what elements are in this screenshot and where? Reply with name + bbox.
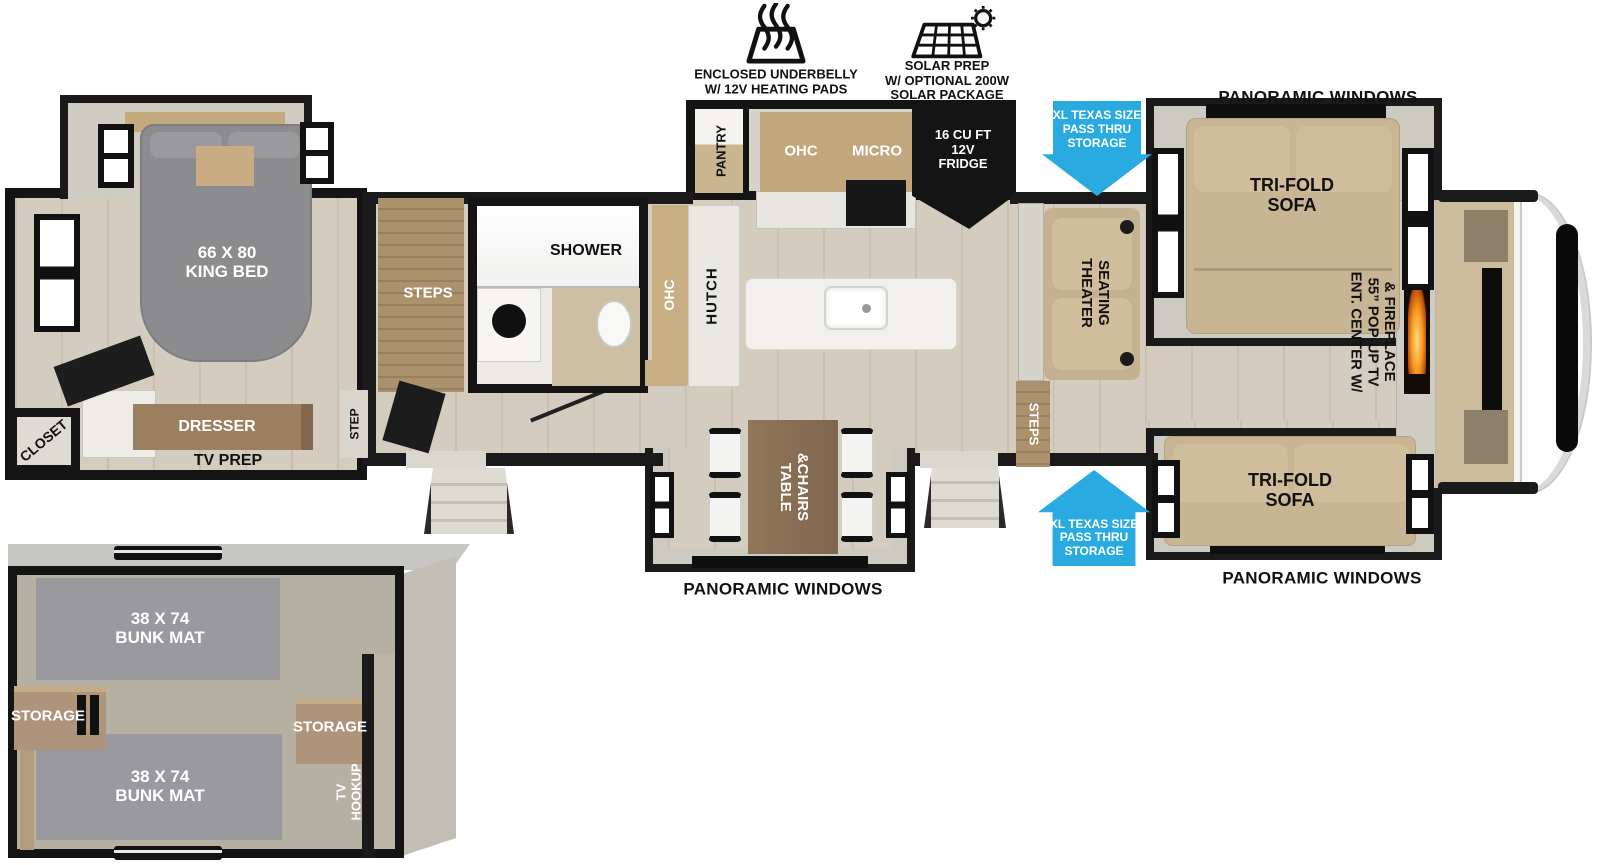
- storage-bay-wall: [1018, 203, 1044, 381]
- pantry-label: PANTRY: [715, 125, 730, 177]
- sofa-slide-bottom-window-right: [1406, 454, 1434, 534]
- entry-door-main: [406, 451, 486, 468]
- hutch-label: HUTCH: [705, 267, 722, 325]
- storage-slot: [90, 695, 99, 735]
- step-label: STEP: [348, 408, 361, 439]
- heating-pads-icon: [737, 3, 815, 65]
- fridge-label: 16 CU FT 12V FRIDGE: [935, 128, 991, 172]
- ohc-upper-label: OHC: [784, 144, 817, 161]
- solar-label: SOLAR PREP W/ OPTIONAL 200W SOLAR PACKAG…: [847, 59, 1047, 103]
- bath-sink-bowl: [492, 304, 526, 338]
- front-cap-window: [1556, 224, 1578, 452]
- entry-steps-living: [924, 466, 1006, 528]
- dresser-label: DRESSER: [178, 418, 255, 436]
- tri-fold-sofa-bottom-label: TRI-FOLD SOFA: [1248, 470, 1332, 510]
- dinette-chair: [708, 492, 742, 542]
- bed-tray: [196, 146, 254, 186]
- bunk-mat-bottom-label: 38 X 74 BUNK MAT: [115, 767, 204, 805]
- ent-cabinet-door-top: [1464, 210, 1508, 262]
- pass-thru-storage-arrow-top: XL TEXAS SIZE PASS THRU STORAGE: [1042, 101, 1152, 196]
- entry-door-living: [920, 451, 998, 468]
- dinette-chair: [708, 428, 742, 478]
- bunk-storage-right-label: STORAGE: [293, 720, 367, 737]
- tri-fold-sofa-top-label: TRI-FOLD SOFA: [1250, 175, 1334, 215]
- bunk-roof-hatch-top: [114, 546, 222, 560]
- sofa-slide-top-window-left: [1152, 148, 1184, 298]
- bunk-interior-wall: [362, 654, 374, 858]
- sofa-slide-top-window-right: [1402, 148, 1434, 290]
- living-steps-label: STEPS: [1026, 403, 1041, 446]
- table-chairs-label: TABLE &CHAIRS: [776, 453, 810, 521]
- micro-label: MICRO: [852, 144, 902, 161]
- bunk-tv-nook-floor: [374, 654, 395, 849]
- solar-panel-icon: [903, 6, 998, 62]
- pass-thru-storage-bottom-label: XL TEXAS SIZE PASS THRU STORAGE: [1038, 518, 1150, 559]
- interior-steps-label: STEPS: [403, 286, 452, 303]
- bedroom-slide-window-left: [98, 124, 134, 188]
- tv-prep-label: TV PREP: [194, 452, 262, 470]
- ohc-side-label: OHC: [662, 279, 678, 310]
- fireplace-flame: [1408, 290, 1426, 374]
- tv-hookup-label: TV HOOKUP: [334, 763, 363, 820]
- pass-thru-storage-top-label: XL TEXAS SIZE PASS THRU STORAGE: [1042, 109, 1152, 150]
- sink-drain: [862, 304, 871, 313]
- ent-center-label: ENT. CENTER W/ 55” POP-UP TV & FIREPLACE: [1347, 272, 1397, 393]
- dinette-panoramic-strip: [692, 556, 868, 568]
- front-cap-trim-bottom: [1438, 482, 1538, 494]
- bunk-right-wall-face: [402, 556, 456, 856]
- island-sink: [824, 286, 888, 330]
- dinette-window-right: [886, 472, 910, 538]
- sofa-seam: [1194, 268, 1392, 271]
- panoramic-windows-bottom-center-label: PANORAMIC WINDOWS: [683, 579, 882, 598]
- front-cap-trim-top: [1438, 190, 1538, 202]
- bedroom-rear-window: [34, 214, 80, 332]
- cupholder: [1120, 220, 1134, 234]
- dinette-chair: [840, 492, 874, 542]
- ent-cabinet-door-bottom: [1464, 410, 1508, 464]
- floorplan-canvas: ENCLOSED UNDERBELLY W/ 12V HEATING PADS …: [0, 0, 1600, 865]
- bunk-roof-hatch-bottom: [114, 846, 222, 860]
- bedroom-slide-window-right: [300, 122, 334, 184]
- hall-cabinet-end: [645, 360, 685, 386]
- bunk-storage-left-label: STORAGE: [11, 709, 85, 726]
- bunk-mat-top-label: 38 X 74 BUNK MAT: [115, 609, 204, 647]
- shower-label: SHOWER: [550, 242, 622, 260]
- theater-seating-label: THEATER SEATING: [1077, 258, 1111, 328]
- dinette-window-left: [650, 472, 674, 538]
- range-cooktop: [846, 180, 906, 226]
- king-bed-label: 66 X 80 KING BED: [185, 243, 268, 281]
- panoramic-windows-top-label: PANORAMIC WINDOWS: [1218, 87, 1417, 106]
- panoramic-windows-bottom-right-label: PANORAMIC WINDOWS: [1222, 568, 1421, 587]
- bunk-ladder: [20, 748, 34, 850]
- dinette-chair: [840, 428, 874, 478]
- sofa-slide-bottom-window-left: [1152, 460, 1180, 538]
- cupholder: [1120, 352, 1134, 366]
- pass-thru-storage-arrow-bottom: XL TEXAS SIZE PASS THRU STORAGE: [1038, 470, 1150, 566]
- entry-steps-main: [424, 468, 514, 534]
- pop-up-tv: [1482, 268, 1502, 410]
- toilet: [596, 300, 632, 348]
